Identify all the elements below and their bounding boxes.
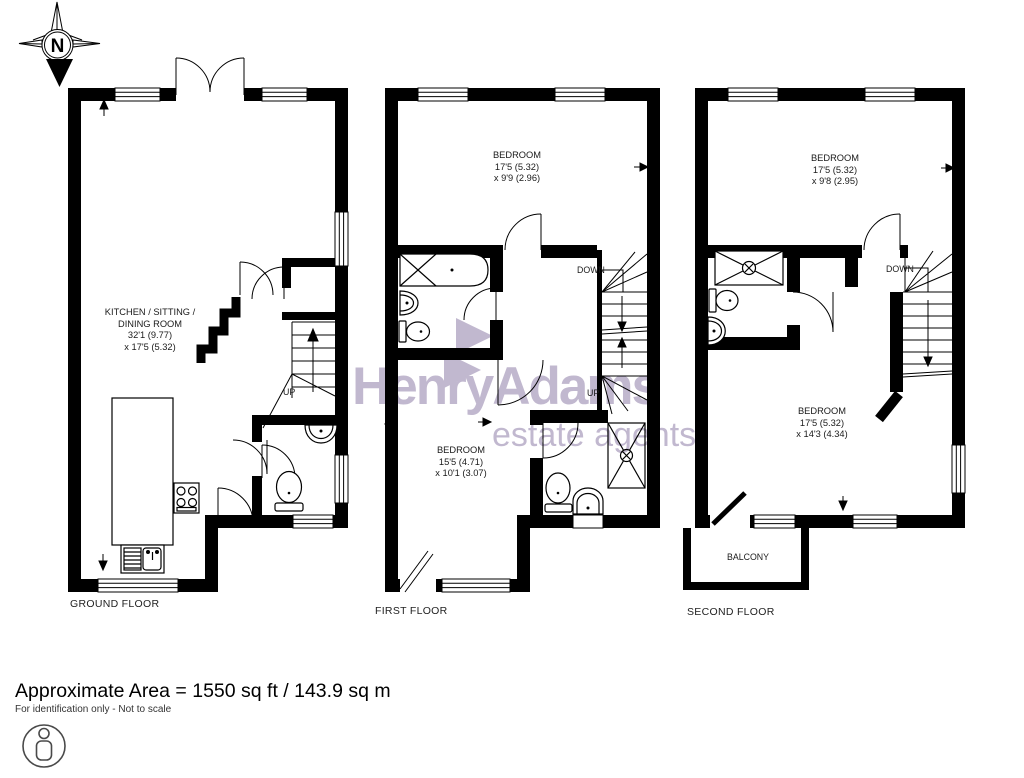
wc-sink: [305, 425, 337, 443]
room-dimension: 17'5 (5.32): [796, 418, 847, 430]
first-floor-front-bedroom-label: BEDROOM 15'5 (4.71) x 10'1 (3.07): [435, 445, 486, 480]
person-icon: [23, 725, 65, 767]
first-floor-rear-bedroom-label: BEDROOM 17'5 (5.32) x 9'9 (2.96): [493, 150, 541, 185]
second-floor-rear-bedroom-label: BEDROOM 17'5 (5.32) x 9'8 (2.95): [811, 153, 859, 188]
first-floor-title: FIRST FLOOR: [375, 605, 448, 617]
room-dimension: x 9'8 (2.95): [811, 176, 859, 188]
stepped-wall: [201, 297, 236, 363]
ground-floor-up-label: UP: [283, 388, 295, 397]
room-name-line: BEDROOM: [493, 150, 541, 162]
room-name-line: KITCHEN / SITTING /: [105, 307, 195, 319]
balcony-label: BALCONY: [727, 553, 769, 562]
balcony-wall: [683, 582, 809, 590]
bathtub: [400, 254, 488, 286]
second-floor-title: SECOND FLOOR: [687, 606, 775, 618]
first-floor-dimension-arrows: [385, 163, 648, 428]
kitchen-fixtures: [112, 398, 199, 573]
room-dimension: 17'5 (5.32): [493, 162, 541, 174]
room-dimension: x 9'9 (2.96): [493, 173, 541, 185]
first-floor-down-label: DOWN: [577, 266, 605, 275]
disclaimer-text: For identification only - Not to scale: [15, 704, 171, 715]
ground-floor-title: GROUND FLOOR: [70, 598, 159, 610]
room-dimension: x 10'1 (3.07): [435, 468, 486, 480]
bathroom-fixtures: [399, 254, 488, 342]
room-dimension: x 17'5 (5.32): [105, 342, 195, 354]
room-dimension: 32'1 (9.77): [105, 330, 195, 342]
room-dimension: x 14'3 (4.34): [796, 429, 847, 441]
compass-south-pointer: [46, 59, 73, 87]
kitchen-counter: [112, 398, 173, 545]
floorplan-canvas: N: [0, 0, 1024, 778]
compass-rose: N: [19, 2, 100, 87]
compass-north-label: N: [51, 36, 65, 57]
room-name-line: DINING ROOM: [105, 319, 195, 331]
ground-floor-doors-stairs: [176, 58, 335, 523]
room-dimension: 17'5 (5.32): [811, 165, 859, 177]
second-floor-doors-stairs: [793, 214, 952, 419]
wc-toilet: [277, 472, 302, 503]
wc-fixtures: [275, 425, 337, 511]
room-name-line: BEDROOM: [435, 445, 486, 457]
first-floor-up-label: UP: [587, 389, 599, 398]
ensuite-fixtures: [545, 423, 645, 514]
room-name-line: BEDROOM: [796, 406, 847, 418]
balcony-door-leaf: [713, 493, 745, 524]
balcony-wall: [801, 528, 809, 590]
room-dimension: 15'5 (4.71): [435, 457, 486, 469]
second-floor-down-label: DOWN: [886, 265, 914, 274]
ground-floor-room-label: KITCHEN / SITTING / DINING ROOM 32'1 (9.…: [105, 307, 195, 353]
shower-room-toilet: [716, 291, 738, 311]
ensuite-toilet: [546, 473, 570, 503]
room-name-line: BEDROOM: [811, 153, 859, 165]
floorplan-drawing: N: [0, 0, 1024, 778]
bathroom-toilet: [407, 322, 430, 341]
second-floor-front-bedroom-label: BEDROOM 17'5 (5.32) x 14'3 (4.34): [796, 406, 847, 441]
balcony-wall: [683, 528, 691, 590]
shower-room-fixtures: [708, 251, 783, 345]
approximate-area-text: Approximate Area = 1550 sq ft / 143.9 sq…: [15, 680, 391, 703]
